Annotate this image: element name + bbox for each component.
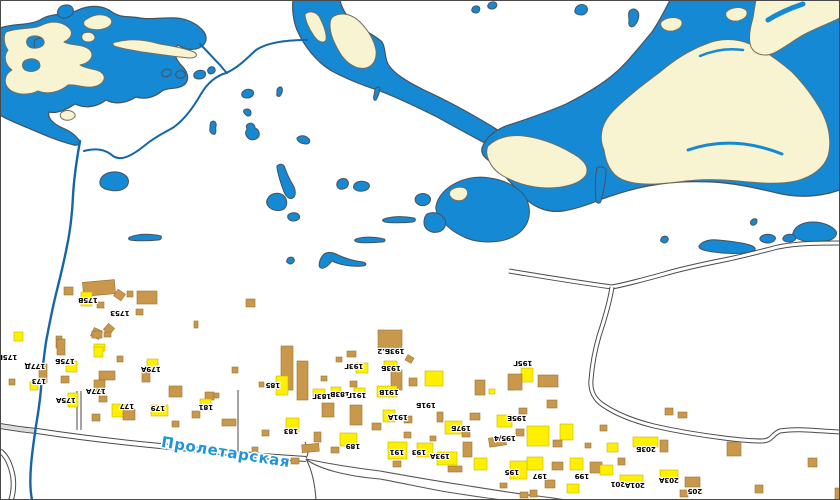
building xyxy=(755,485,763,493)
building xyxy=(660,440,668,452)
building xyxy=(448,466,462,472)
building xyxy=(172,421,179,427)
pond xyxy=(760,234,776,243)
building xyxy=(508,374,522,390)
pond xyxy=(629,9,639,27)
lake-islet xyxy=(449,187,467,201)
house-number-label: 177Д xyxy=(25,362,46,371)
building xyxy=(500,483,507,488)
pond xyxy=(472,6,480,13)
house-number-label: 203А xyxy=(658,476,678,485)
southeast-road xyxy=(591,287,840,441)
building xyxy=(585,443,591,448)
building xyxy=(530,490,537,497)
building xyxy=(404,432,411,438)
building xyxy=(600,465,613,475)
building xyxy=(727,442,741,456)
building xyxy=(430,436,436,441)
pond xyxy=(244,109,251,116)
pond xyxy=(750,219,757,226)
building xyxy=(463,442,472,457)
building xyxy=(808,458,817,467)
pond xyxy=(194,70,206,79)
southwest-lane xyxy=(0,451,13,500)
house-number-label: 179А xyxy=(140,365,160,374)
map-viewport: 175В175З175Г177Д175Б173175А177А177179179… xyxy=(0,0,840,500)
building xyxy=(470,413,480,420)
house-number-label: 177 xyxy=(120,402,135,411)
pond xyxy=(100,172,129,191)
building xyxy=(570,458,583,470)
building xyxy=(521,368,533,382)
building xyxy=(474,458,487,470)
building xyxy=(117,356,123,362)
pond xyxy=(355,237,385,243)
house-number-label: 175Г xyxy=(0,353,17,362)
building xyxy=(302,443,320,452)
house-number-label: 183В xyxy=(330,390,350,399)
building xyxy=(336,357,342,362)
building xyxy=(520,492,528,498)
pond xyxy=(575,5,588,15)
pond xyxy=(383,217,416,223)
building-layer xyxy=(9,280,840,500)
building xyxy=(321,376,327,381)
building xyxy=(618,458,625,465)
house-number-label: 195/4 xyxy=(494,434,516,443)
building xyxy=(222,419,236,426)
house-number-label: 175В xyxy=(78,296,98,305)
building xyxy=(425,371,443,386)
building xyxy=(99,371,115,380)
pond xyxy=(297,136,310,144)
building xyxy=(437,412,443,422)
pond xyxy=(267,193,287,210)
northeast-road xyxy=(509,243,840,287)
house-number-label: 193Б.2 xyxy=(377,347,404,356)
building xyxy=(194,321,198,328)
building xyxy=(553,440,562,447)
building xyxy=(322,403,334,417)
house-number-label: 195Е xyxy=(507,414,526,423)
nw-islet xyxy=(60,110,75,120)
pond xyxy=(208,67,216,74)
building xyxy=(137,291,157,304)
building xyxy=(547,400,557,408)
house-number-label: 201 xyxy=(611,480,626,489)
house-number-label: 191А xyxy=(387,413,407,422)
pond xyxy=(793,222,837,242)
building xyxy=(127,291,133,297)
building xyxy=(347,351,356,357)
house-number-label: 183 xyxy=(284,427,299,436)
building xyxy=(405,355,414,364)
building xyxy=(314,432,321,442)
house-number-label: 195 xyxy=(505,468,520,477)
house-number-label: 175А xyxy=(55,396,75,405)
pond xyxy=(436,177,530,242)
pond xyxy=(661,236,669,243)
building xyxy=(607,443,618,452)
building xyxy=(291,458,299,464)
house-number-label: 177А xyxy=(85,387,105,396)
building xyxy=(104,332,111,337)
street-name-label: Пролетарская xyxy=(160,433,292,471)
map-canvas[interactable]: 175В175З175Г177Д175Б173175А177А177179179… xyxy=(0,0,840,500)
building xyxy=(409,378,417,386)
pond xyxy=(57,5,73,18)
house-number-label: 201А xyxy=(624,481,644,490)
house-number-label: 191Г xyxy=(347,391,366,400)
house-number-label: 195Г xyxy=(513,359,532,368)
house-number-label: 183Г xyxy=(312,392,331,401)
house-number-label: 193А xyxy=(429,452,449,461)
house-number-label: 199 xyxy=(575,472,590,481)
pond xyxy=(246,123,260,140)
minor-road xyxy=(307,460,503,500)
building xyxy=(92,414,100,421)
building xyxy=(246,299,255,307)
building xyxy=(169,386,182,397)
pond xyxy=(210,121,216,134)
house-number-label: 191В xyxy=(379,388,399,397)
house-number-label: 193Г xyxy=(344,362,363,371)
building xyxy=(331,447,339,453)
building xyxy=(14,332,23,341)
house-number-label: 197Б xyxy=(451,424,471,433)
building xyxy=(94,347,103,357)
pond xyxy=(277,87,283,96)
pond xyxy=(415,194,430,206)
building xyxy=(489,389,495,394)
stream xyxy=(30,141,80,500)
building xyxy=(372,423,381,430)
building xyxy=(475,380,485,395)
building xyxy=(600,425,607,431)
pond xyxy=(337,179,349,190)
pond xyxy=(488,2,497,9)
building xyxy=(680,490,688,497)
building xyxy=(538,375,558,387)
building xyxy=(262,430,269,436)
building xyxy=(232,367,238,373)
building xyxy=(552,462,563,470)
nw-island-large xyxy=(4,22,104,94)
building xyxy=(350,405,362,425)
house-number-label: 193Б xyxy=(381,364,401,373)
building xyxy=(350,381,357,387)
pond xyxy=(242,89,254,98)
pond xyxy=(129,234,162,241)
building xyxy=(678,412,687,418)
building xyxy=(297,361,308,400)
pond xyxy=(176,71,186,78)
building xyxy=(560,424,573,440)
building xyxy=(519,408,527,414)
house-number-label: 185 xyxy=(266,381,281,390)
building xyxy=(259,382,264,387)
house-number-label: 175Б xyxy=(55,357,75,366)
house-number-label: 191Б xyxy=(416,401,436,410)
house-number-label: 173 xyxy=(32,377,47,386)
pond xyxy=(699,240,755,254)
pond xyxy=(287,257,295,264)
pond xyxy=(319,252,366,268)
pond xyxy=(783,234,796,242)
building xyxy=(516,429,524,436)
north-river xyxy=(293,0,520,153)
building xyxy=(527,426,549,446)
building xyxy=(685,477,700,487)
house-number-label: 197 xyxy=(533,472,548,481)
pond xyxy=(162,69,172,77)
road-layer xyxy=(0,243,840,500)
building xyxy=(136,309,143,315)
house-number-label: 205 xyxy=(688,487,703,496)
pond xyxy=(354,181,370,191)
house-number-label: 203Б xyxy=(636,445,656,454)
building xyxy=(393,461,401,467)
building xyxy=(527,457,543,470)
house-number-label: 193 xyxy=(412,448,427,457)
house-number-label: 181 xyxy=(199,403,214,412)
building xyxy=(61,376,69,383)
minor-road xyxy=(306,459,316,500)
house-number-label: 175З xyxy=(110,309,129,318)
house-number-label: 189 xyxy=(346,442,361,451)
building xyxy=(567,484,579,493)
building xyxy=(665,408,673,415)
pond xyxy=(288,213,300,221)
building xyxy=(9,379,15,385)
house-number-label: 191 xyxy=(390,448,405,457)
building xyxy=(64,287,73,295)
building xyxy=(92,331,102,338)
house-number-label: 179 xyxy=(151,404,166,413)
building xyxy=(57,339,65,355)
